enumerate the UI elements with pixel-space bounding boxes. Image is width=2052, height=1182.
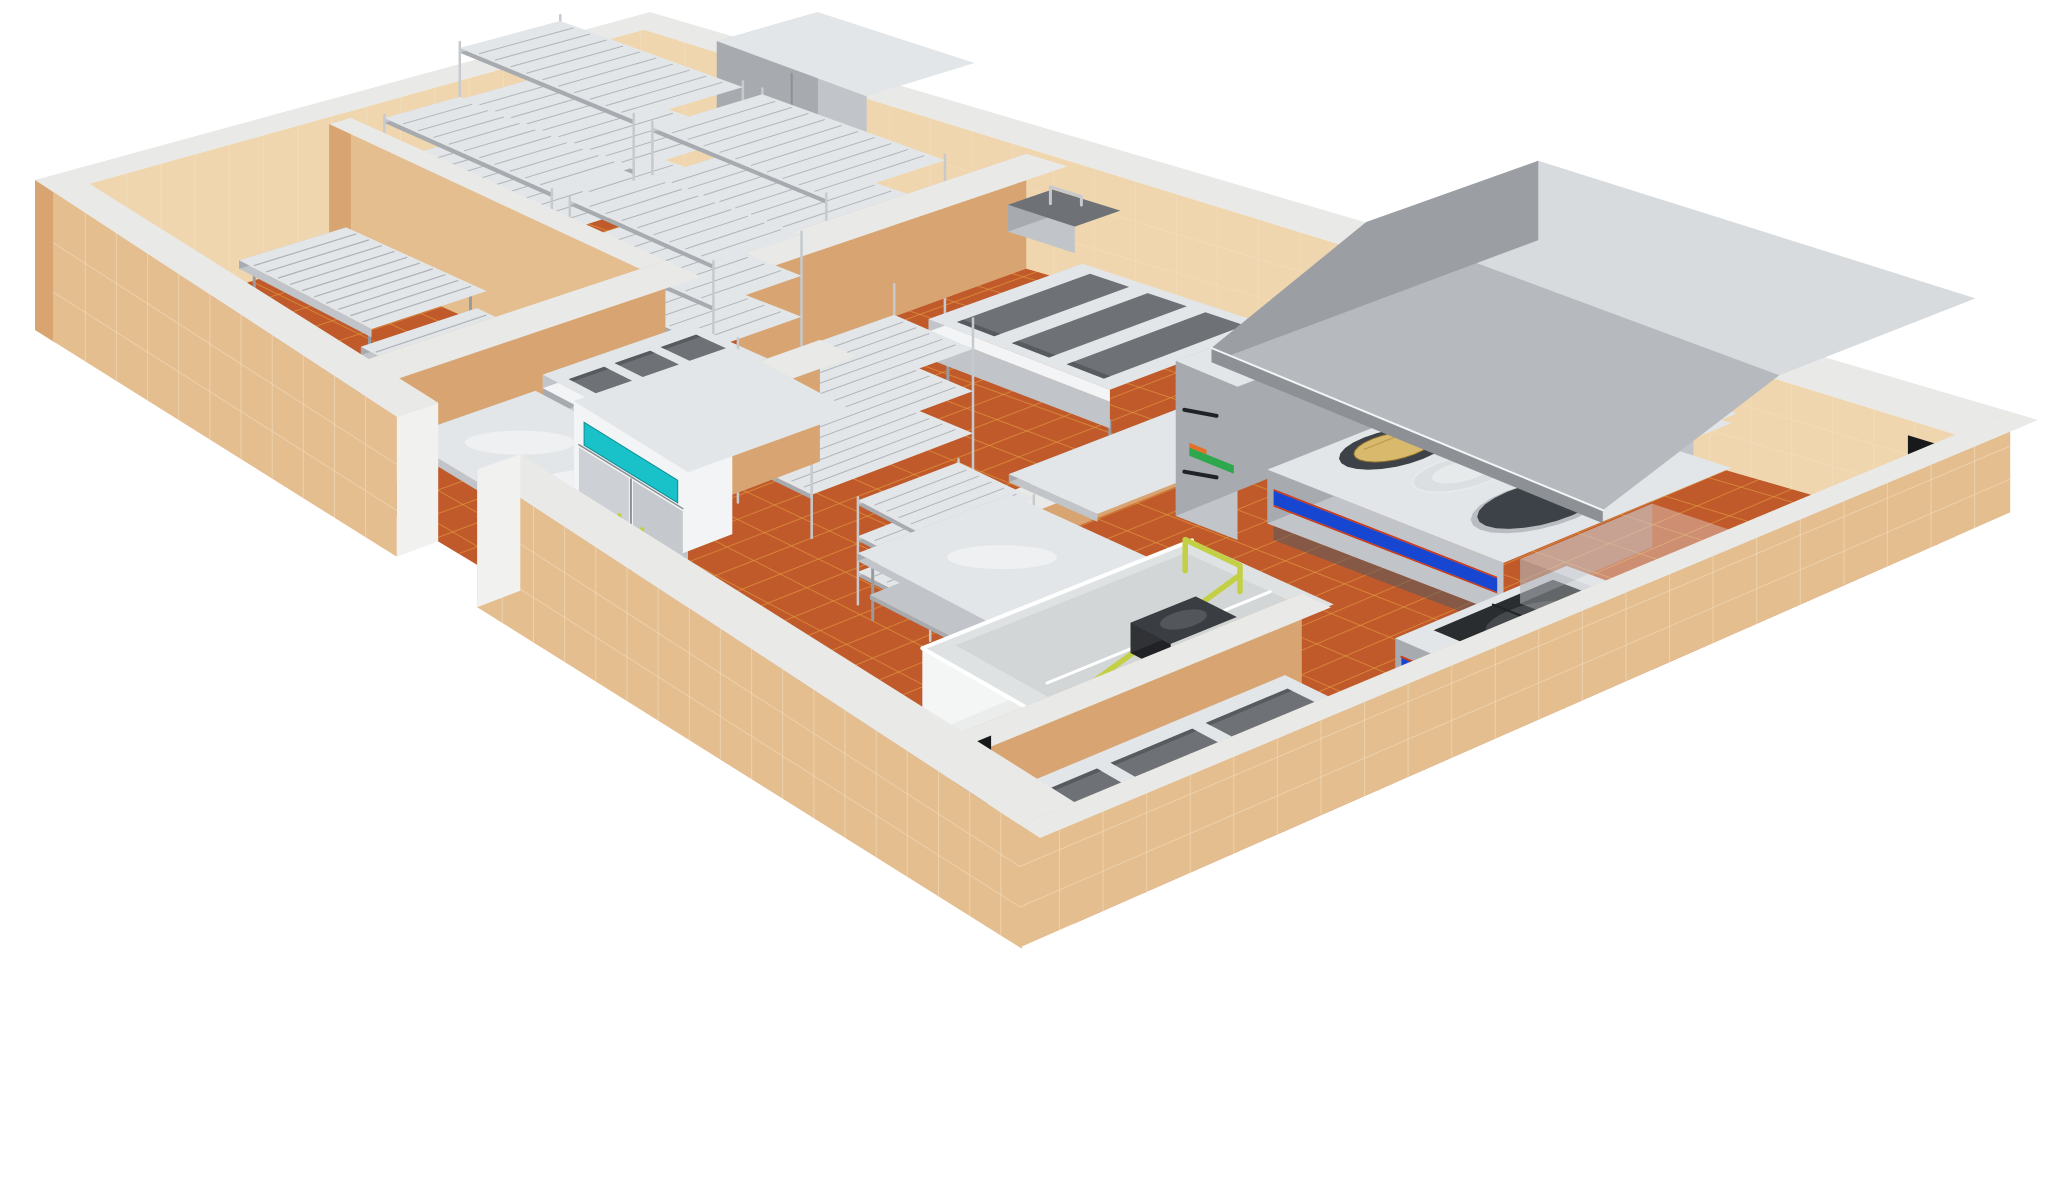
kitchen-render-stage	[0, 0, 2052, 1182]
kitchen-3d-render	[0, 0, 2052, 1182]
